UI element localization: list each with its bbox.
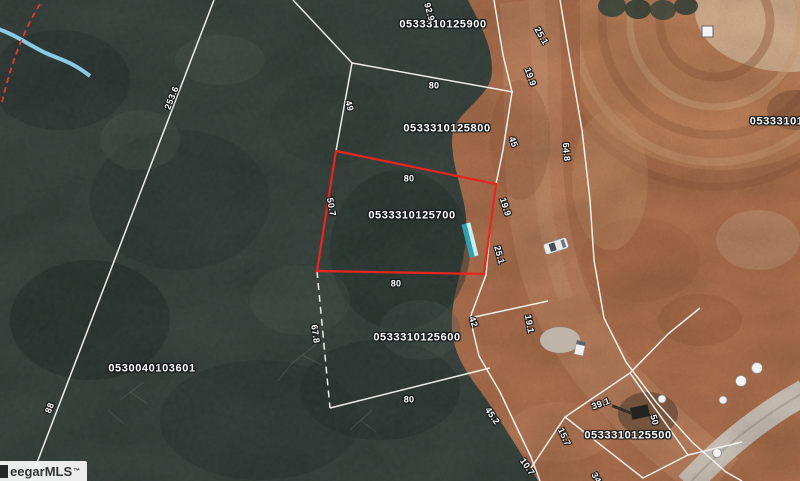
dimension-label: 49 <box>343 100 354 113</box>
dimension-label: 25.1 <box>492 245 506 265</box>
aerial-parcel-map: 0533310125900053331012580005333101257000… <box>0 0 800 481</box>
dimension-label: 88 <box>44 401 56 414</box>
parcel-id-label: 0533310125800 <box>403 124 490 135</box>
dimension-label: 80 <box>404 175 415 184</box>
dimension-label: 10.7 <box>518 457 536 477</box>
dimension-label: 67.8 <box>309 324 321 344</box>
dimension-label: 80 <box>391 280 402 289</box>
dimension-label: 50 <box>648 414 659 427</box>
mls-logo-text: eegarMLS <box>10 464 72 479</box>
label-layer: 0533310125900053331012580005333101257000… <box>0 0 800 481</box>
trademark-symbol: ™ <box>73 468 80 475</box>
mls-logo-mark <box>0 465 8 478</box>
parcel-id-label: 0530040103601 <box>108 364 195 375</box>
dimension-label: 34 <box>589 471 602 481</box>
dimension-label: 80 <box>404 396 415 405</box>
parcel-id-label: 053331012 <box>750 117 800 128</box>
parcel-id-label: 0533310125600 <box>373 333 460 344</box>
dimension-label: 45.2 <box>483 406 501 426</box>
dimension-label: 42 <box>467 315 479 328</box>
parcel-id-label: 0533310125900 <box>399 20 486 31</box>
dimension-label: 19.1 <box>523 314 535 334</box>
dimension-label: 19.9 <box>523 67 538 88</box>
dimension-label: 19.9 <box>498 197 512 218</box>
parcel-id-label: 0533310125500 <box>584 431 671 442</box>
dimension-label: 253.6 <box>163 85 180 111</box>
dimension-label: 25.1 <box>532 26 549 47</box>
dimension-label: 15.7 <box>556 427 572 448</box>
parcel-id-label: 0533310125700 <box>368 211 455 222</box>
dimension-label: 45 <box>507 135 519 148</box>
dimension-label: 50.7 <box>325 197 337 217</box>
dimension-label: 64.8 <box>561 142 572 161</box>
dimension-label: 80 <box>429 82 440 91</box>
mls-watermark: eegarMLS ™ <box>0 461 87 481</box>
dimension-label: 39.1 <box>591 397 612 412</box>
